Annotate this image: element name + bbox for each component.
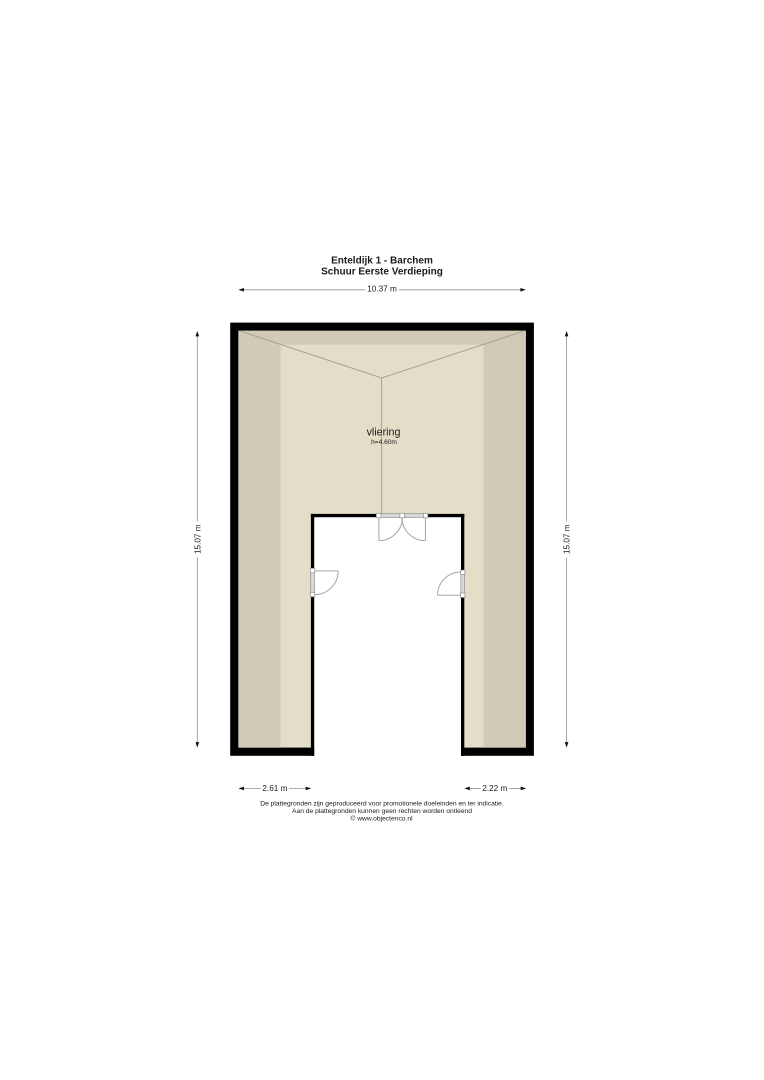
svg-text:Enteldijk 1 - Barchem: Enteldijk 1 - Barchem [331, 256, 433, 267]
svg-text:15.07 m: 15.07 m [563, 524, 572, 554]
svg-text:10.37 m: 10.37 m [367, 285, 397, 294]
svg-text:15.07 m: 15.07 m [193, 524, 202, 554]
svg-text:vliering: vliering [367, 426, 401, 438]
svg-text:© www.objectenco.nl: © www.objectenco.nl [350, 814, 413, 822]
svg-text:2.22 m: 2.22 m [482, 784, 507, 793]
svg-text:h=4.60m: h=4.60m [371, 439, 397, 446]
svg-text:2.61 m: 2.61 m [262, 784, 287, 793]
svg-text:Schuur Eerste Verdieping: Schuur Eerste Verdieping [321, 266, 443, 277]
svg-text:Aan de plattegronden kunnen ge: Aan de plattegronden kunnen geen rechten… [292, 808, 472, 815]
svg-text:De plattegronden zijn geproduc: De plattegronden zijn geproduceerd voor … [260, 800, 504, 807]
